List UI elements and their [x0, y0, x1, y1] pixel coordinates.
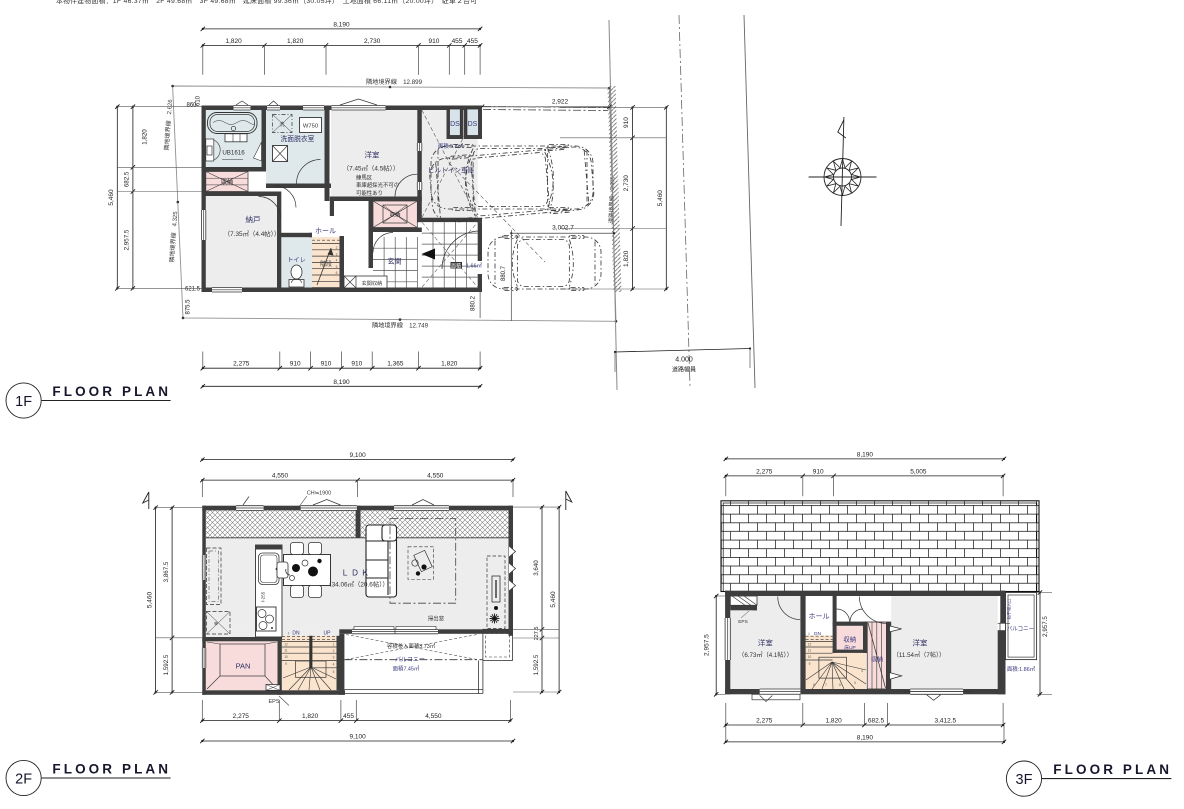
svg-text:収納: 収納 — [221, 178, 233, 186]
svg-text:本物件建物面積：1F 46.37㎡ 2F 49.68㎡ 3F: 本物件建物面積：1F 46.37㎡ 2F 49.68㎡ 3F 49.68㎡ 延床… — [56, 0, 477, 5]
svg-text:物干場入口: 物干場入口 — [1006, 599, 1013, 620]
svg-text:4,550: 4,550 — [425, 713, 442, 720]
svg-text:隣地境界線 12.899: 隣地境界線 12.899 — [366, 78, 423, 86]
svg-text:⊗: ⊗ — [214, 621, 218, 627]
svg-text:洋室: 洋室 — [913, 638, 928, 648]
svg-text:5: 5 — [854, 681, 856, 685]
svg-text:DN: DN — [292, 631, 300, 637]
svg-text:910: 910 — [351, 361, 362, 368]
svg-text:4,550: 4,550 — [272, 473, 289, 480]
svg-text:収納: 収納 — [871, 656, 883, 664]
svg-text:（7.35㎡（4.4帖））: （7.35㎡（4.4帖）） — [224, 229, 280, 238]
svg-text:面積: 面積 — [451, 263, 461, 270]
svg-text:12: 12 — [284, 643, 288, 647]
svg-text:455: 455 — [467, 38, 478, 45]
svg-text:621.5: 621.5 — [185, 287, 201, 293]
svg-text:1,592.5: 1,592.5 — [533, 654, 540, 675]
svg-text:5: 5 — [336, 265, 338, 269]
svg-text:910: 910 — [321, 361, 332, 368]
svg-text:4,550: 4,550 — [427, 473, 444, 480]
svg-text:2,922: 2,922 — [552, 99, 569, 106]
svg-text:収納: 収納 — [843, 635, 856, 644]
svg-text:5: 5 — [333, 670, 335, 674]
svg-text:5,460: 5,460 — [147, 591, 154, 608]
svg-text:（34.06㎡（20.6帖））: （34.06㎡（20.6帖）） — [325, 580, 389, 589]
svg-text:1: 1 — [333, 643, 335, 647]
svg-text:車庫超採光不可の: 車庫超採光不可の — [356, 181, 399, 189]
svg-text:3: 3 — [336, 252, 338, 256]
svg-text:8,190: 8,190 — [333, 21, 350, 28]
svg-text:4: 4 — [861, 669, 863, 673]
svg-text:1,820: 1,820 — [441, 361, 458, 368]
svg-text:2,957.5: 2,957.5 — [1042, 616, 1049, 637]
svg-text:11: 11 — [284, 649, 288, 653]
svg-text:EPS: EPS — [268, 699, 279, 705]
svg-text:3,412.5: 3,412.5 — [934, 718, 956, 725]
svg-text:5,460: 5,460 — [550, 591, 557, 608]
svg-text:⇩: ⇩ — [808, 632, 811, 636]
svg-text:2,730: 2,730 — [364, 38, 381, 45]
svg-text:8,190: 8,190 — [333, 379, 350, 386]
svg-text:面積7.45㎡: 面積7.45㎡ — [393, 665, 420, 673]
svg-text:2: 2 — [336, 246, 338, 250]
svg-text:8,190: 8,190 — [857, 734, 874, 741]
svg-text:4.000: 4.000 — [675, 357, 693, 364]
svg-text:10: 10 — [284, 655, 288, 659]
svg-text:（11.54㎡（7帖））: （11.54㎡（7帖）） — [893, 651, 946, 659]
svg-text:2,275: 2,275 — [233, 361, 250, 368]
svg-text:5,460: 5,460 — [108, 189, 115, 206]
svg-text:容積参入面積3.73㎡: 容積参入面積3.73㎡ — [387, 642, 436, 650]
svg-text:ホール: ホール — [809, 613, 830, 621]
svg-text:610: 610 — [196, 95, 202, 106]
svg-text:ＬＤＫ: ＬＤＫ — [341, 569, 371, 578]
svg-text:6: 6 — [336, 271, 338, 275]
svg-text:隣地境界線 12.749: 隣地境界線 12.749 — [372, 322, 429, 330]
svg-text:（6.73㎡（4.1帖））: （6.73㎡（4.1帖）） — [738, 651, 793, 659]
svg-text:掃出窓: 掃出窓 — [428, 615, 445, 623]
svg-text:DS: DS — [468, 121, 478, 128]
svg-text:FLOOR PLAN: FLOOR PLAN — [1053, 762, 1172, 777]
svg-text:5,460: 5,460 — [657, 190, 664, 207]
svg-text:227.5: 227.5 — [534, 627, 540, 641]
svg-text:1,820: 1,820 — [302, 713, 319, 720]
svg-text:面積:1.86㎡: 面積:1.86㎡ — [1007, 665, 1036, 673]
svg-text:バルコニー: バルコニー — [1007, 626, 1034, 633]
svg-text:1,820: 1,820 — [142, 129, 149, 145]
svg-text:7: 7 — [825, 683, 827, 687]
svg-text:（7.45㎡（4.5帖））: （7.45㎡（4.5帖）） — [343, 164, 399, 173]
svg-text:1,365: 1,365 — [387, 361, 404, 368]
svg-text:875.5: 875.5 — [186, 299, 192, 315]
svg-text:3F: 3F — [1016, 772, 1033, 788]
svg-text:9: 9 — [285, 662, 287, 666]
svg-text:4: 4 — [333, 662, 335, 666]
svg-text:2,730: 2,730 — [623, 175, 630, 192]
svg-text:PAN: PAN — [236, 662, 251, 671]
svg-text:3,640: 3,640 — [533, 560, 540, 576]
svg-text:910: 910 — [813, 468, 824, 475]
svg-text:880.2: 880.2 — [471, 295, 477, 311]
svg-text:8: 8 — [813, 683, 815, 687]
svg-text:2,275: 2,275 — [756, 468, 773, 475]
svg-text:可能性あり: 可能性あり — [356, 189, 383, 197]
svg-text:ℓ-255: ℓ-255 — [261, 591, 266, 602]
svg-text:1F: 1F — [15, 394, 32, 410]
svg-text:910: 910 — [428, 38, 439, 45]
svg-text:3,002.7: 3,002.7 — [552, 225, 574, 232]
svg-text:DN: DN — [814, 631, 821, 637]
svg-text:⇩: ⇩ — [287, 632, 290, 636]
svg-text:洋室: 洋室 — [365, 150, 380, 160]
svg-text:1.66㎡: 1.66㎡ — [466, 262, 482, 270]
svg-text:10: 10 — [808, 655, 812, 659]
svg-text:2,275: 2,275 — [756, 718, 773, 725]
svg-text:3: 3 — [333, 656, 335, 660]
svg-text:玄関: 玄関 — [388, 257, 402, 266]
svg-text:910: 910 — [290, 361, 301, 368]
svg-text:洋室: 洋室 — [758, 638, 773, 648]
svg-text:EPS: EPS — [738, 619, 748, 625]
svg-text:トイレ: トイレ — [287, 257, 306, 264]
svg-text:9,100: 9,100 — [349, 452, 366, 459]
svg-text:3,867.5: 3,867.5 — [163, 561, 170, 582]
svg-text:UP: UP — [324, 631, 332, 637]
svg-text:FLOOR PLAN: FLOOR PLAN — [52, 762, 171, 777]
svg-text:8,190: 8,190 — [857, 451, 874, 458]
svg-text:道路幅員: 道路幅員 — [672, 366, 696, 374]
svg-text:2F: 2F — [15, 772, 32, 788]
svg-text:910: 910 — [623, 117, 630, 128]
svg-text:5,005: 5,005 — [910, 468, 927, 475]
svg-text:バルコニー: バルコニー — [395, 657, 425, 664]
svg-text:4: 4 — [336, 259, 338, 263]
svg-text:ホール: ホール — [315, 227, 336, 235]
svg-text:2: 2 — [333, 649, 335, 653]
svg-text:洗面脱衣室: 洗面脱衣室 — [281, 134, 315, 143]
svg-text:455: 455 — [452, 38, 463, 45]
svg-text:2,275: 2,275 — [233, 713, 250, 720]
svg-text:682.5: 682.5 — [124, 171, 131, 187]
svg-text:9,100: 9,100 — [349, 734, 366, 741]
svg-text:収納: 収納 — [389, 211, 401, 219]
svg-text:W750: W750 — [303, 124, 318, 130]
svg-text:6: 6 — [839, 683, 841, 687]
svg-text:1,820: 1,820 — [287, 38, 304, 45]
svg-text:880.7: 880.7 — [501, 265, 507, 281]
svg-text:階段: 階段 — [320, 260, 332, 268]
svg-text:1,820: 1,820 — [623, 250, 630, 267]
svg-text:12: 12 — [808, 643, 812, 647]
svg-text:玄関収納: 玄関収納 — [362, 279, 383, 287]
svg-text:682.5: 682.5 — [868, 718, 885, 725]
svg-text:1,592.5: 1,592.5 — [163, 654, 170, 675]
svg-text:2,957.5: 2,957.5 — [704, 634, 711, 656]
svg-text:1,820: 1,820 — [825, 718, 842, 725]
svg-text:2,957.5: 2,957.5 — [124, 229, 131, 250]
svg-text:納戸: 納戸 — [246, 214, 261, 224]
svg-text:CH≒1900: CH≒1900 — [307, 491, 331, 497]
svg-text:1,820: 1,820 — [225, 38, 242, 45]
svg-text:DS: DS — [450, 121, 460, 128]
svg-text:11: 11 — [808, 649, 812, 653]
svg-text:UB1616: UB1616 — [222, 150, 245, 157]
svg-text:洗: 洗 — [279, 121, 284, 128]
svg-text:455: 455 — [343, 713, 354, 720]
svg-text:9: 9 — [809, 662, 811, 666]
svg-text:練馬区: 練馬区 — [356, 174, 373, 182]
svg-text:FLOOR PLAN: FLOOR PLAN — [52, 384, 171, 399]
